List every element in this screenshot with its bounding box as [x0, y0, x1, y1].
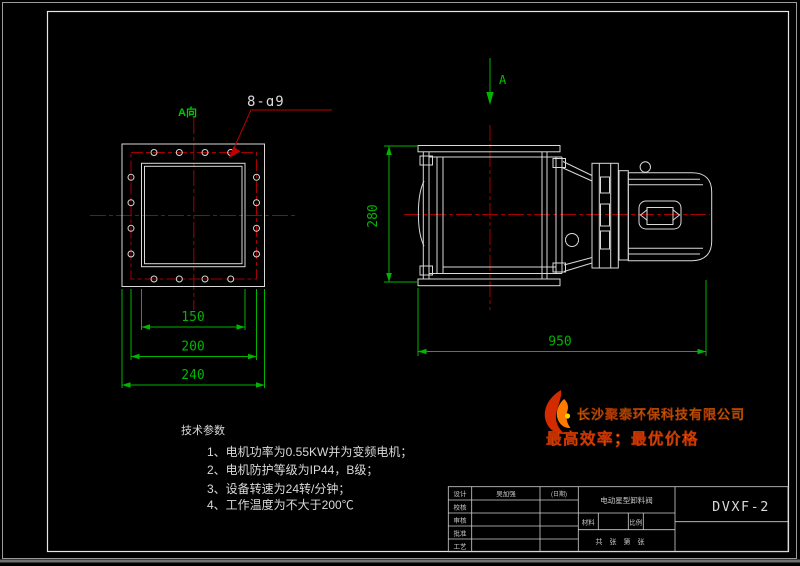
date-placeholder: (日期) — [551, 490, 567, 498]
dim-280-text: 280 — [366, 204, 381, 227]
dim-240-text: 240 — [181, 368, 204, 383]
cad-drawing: 8-ɑ9 A向 150 200 240 A — [0, 0, 800, 566]
note-1: 1、电机功率为0.55KW并为变频电机； — [207, 444, 412, 459]
hole-callout-text: 8-ɑ9 — [247, 94, 285, 110]
notes-heading: 技术参数 — [181, 423, 225, 437]
canvas-background — [0, 0, 800, 566]
dim-200-text: 200 — [181, 340, 204, 355]
scale-label: 比例 — [629, 518, 642, 527]
designer-name: 吴加强 — [496, 489, 516, 498]
note-4: 4、工作温度为不大于200℃ — [207, 497, 354, 512]
sheet-label: 共 张 第 张 — [596, 537, 645, 546]
material-label: 材料 — [582, 518, 596, 527]
role-label-approve: 批准 — [454, 529, 468, 538]
section-label: A — [499, 73, 507, 87]
role-label-process: 工艺 — [454, 543, 468, 551]
view-a-label: A向 — [178, 105, 197, 119]
role-label-audit: 审核 — [454, 516, 468, 525]
company-name: 长沙聚泰环保科技有限公司 — [577, 407, 745, 422]
part-name: 电动星型卸料阀 — [600, 495, 653, 505]
role-label-check: 校核 — [454, 503, 468, 512]
role-label-design: 设计 — [454, 489, 468, 498]
note-2: 2、电机防护等级为IP44，B级； — [207, 462, 378, 477]
note-3: 3、设备转速为24转/分钟； — [207, 481, 350, 496]
cad-drawing-canvas: 8-ɑ9 A向 150 200 240 A — [0, 0, 800, 566]
dim-950-text: 950 — [548, 335, 571, 350]
model-number: DVXF-2 — [712, 499, 770, 515]
slogan-text: 最高效率；最优价格 — [546, 429, 699, 448]
dim-150-text: 150 — [181, 310, 204, 325]
